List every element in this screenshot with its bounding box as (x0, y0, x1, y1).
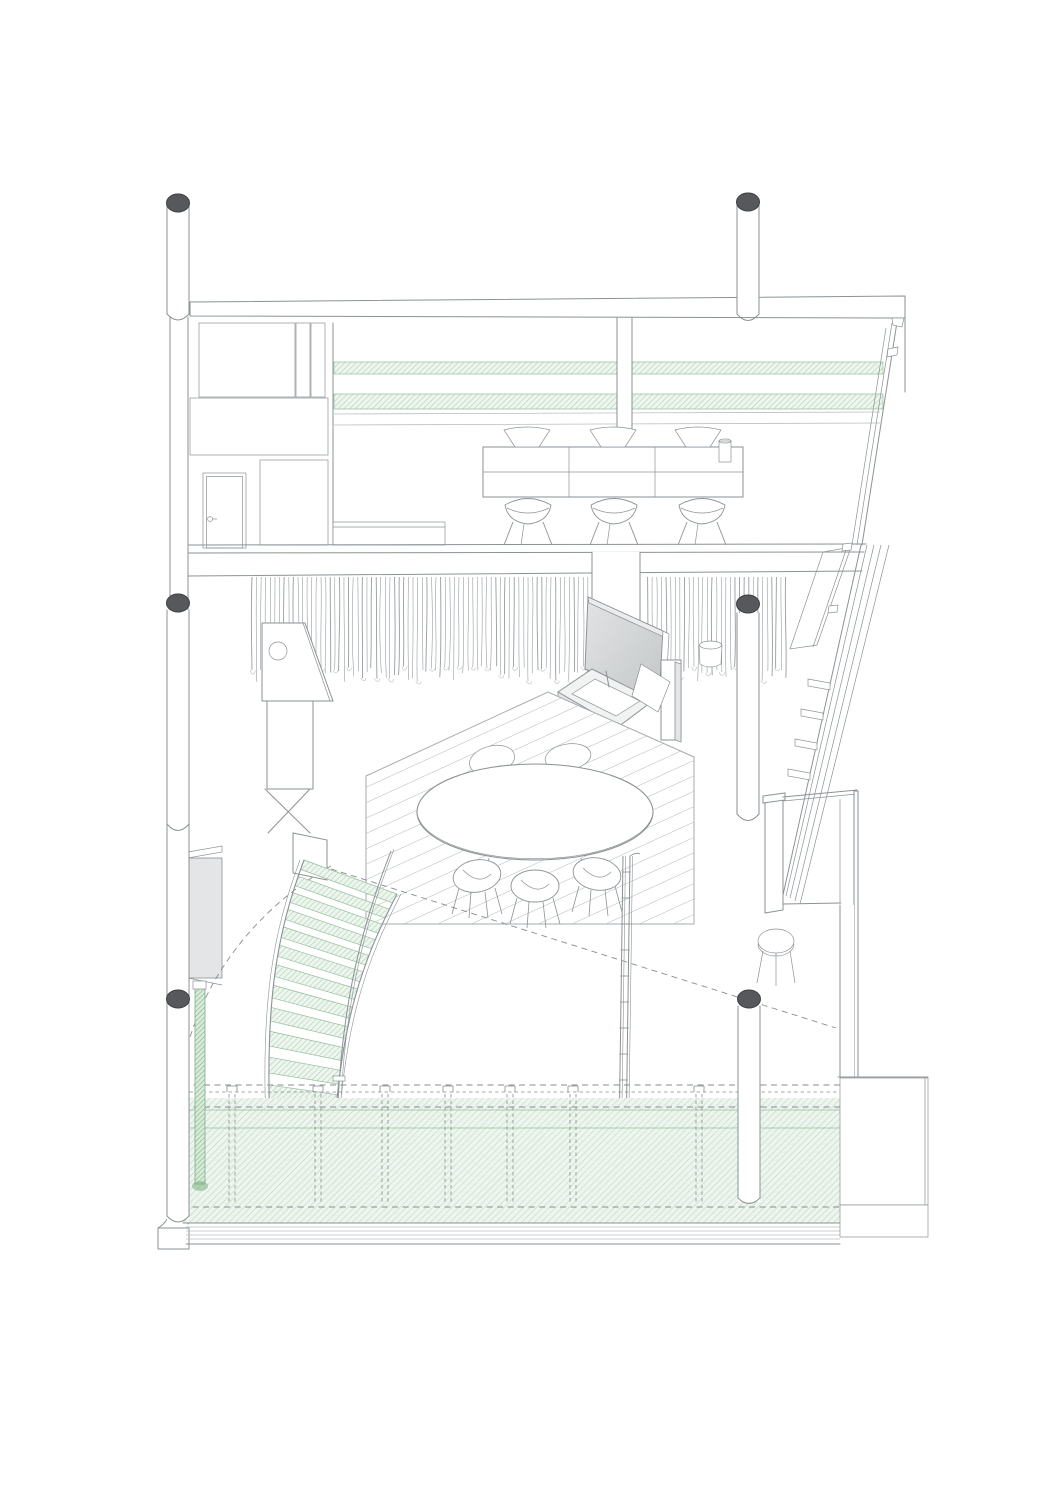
lower-slope-glazing (783, 545, 889, 904)
column-left-top (167, 194, 190, 320)
mezzanine-balustrade (763, 790, 857, 913)
column-right-top (737, 193, 760, 321)
carafe (719, 439, 731, 462)
facade-bracket (887, 347, 898, 357)
roof-beam (190, 296, 905, 327)
hearth-volume (262, 623, 333, 880)
curtain (250, 577, 786, 684)
counter-stools (504, 499, 726, 546)
architectural-drawing-canvas (0, 0, 1060, 1500)
extraction-duct (617, 318, 632, 432)
stool (757, 929, 795, 986)
tilted-window (790, 543, 852, 649)
axonometric-section-drawing (0, 0, 1060, 1500)
lower-right-wall-panel (840, 1078, 928, 1205)
low-bench (333, 522, 445, 545)
gray-cabinet (188, 846, 222, 985)
terrace-edge-boards (186, 1227, 840, 1244)
kitchen-counter (483, 447, 743, 497)
door (203, 473, 246, 548)
tv-stand-box (661, 660, 681, 742)
right-wall (838, 791, 928, 1237)
mid-floor-slab (188, 544, 866, 576)
slope-ledges (788, 679, 830, 780)
column-right-lower (738, 990, 761, 1204)
green-shelf-strips (334, 362, 883, 425)
wall-footing (158, 1228, 189, 1249)
column-left-middle (167, 594, 190, 1222)
waste-bin (699, 641, 722, 667)
column-right-middle (737, 595, 760, 821)
